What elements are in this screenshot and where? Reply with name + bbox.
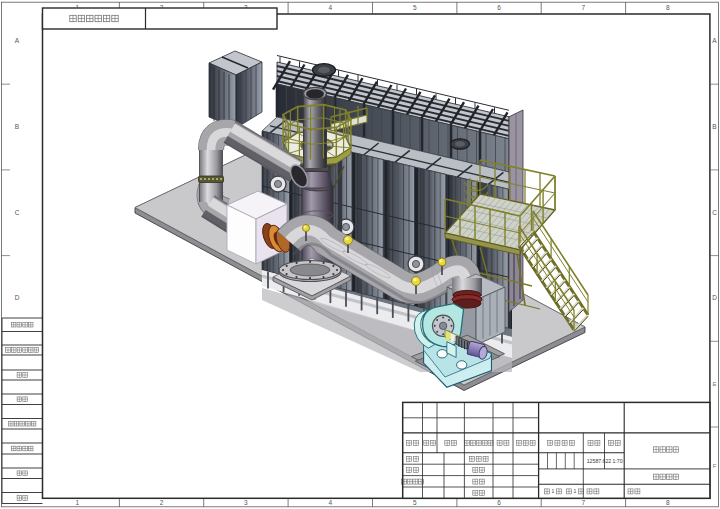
svg-text:D: D bbox=[15, 294, 20, 301]
svg-text:7: 7 bbox=[582, 499, 586, 506]
svg-text:5: 5 bbox=[413, 499, 417, 506]
svg-text:4: 4 bbox=[328, 499, 332, 506]
svg-text:12587.622: 12587.622 bbox=[587, 458, 612, 464]
svg-text:A: A bbox=[15, 37, 20, 44]
svg-text:B: B bbox=[712, 123, 716, 130]
svg-text:1: 1 bbox=[75, 499, 79, 506]
svg-text:1: 1 bbox=[552, 488, 555, 494]
svg-text:C: C bbox=[15, 209, 20, 216]
svg-text:8: 8 bbox=[666, 4, 670, 11]
svg-text:2: 2 bbox=[160, 499, 164, 506]
svg-text:C: C bbox=[712, 209, 717, 216]
svg-text:6: 6 bbox=[497, 499, 501, 506]
svg-text:7: 7 bbox=[582, 4, 586, 11]
svg-text:F: F bbox=[713, 463, 717, 469]
svg-text:B: B bbox=[15, 123, 19, 130]
svg-text:A: A bbox=[712, 37, 717, 44]
svg-text:4: 4 bbox=[328, 4, 332, 11]
svg-text:1:70: 1:70 bbox=[612, 458, 622, 464]
svg-text:D: D bbox=[712, 294, 717, 301]
svg-text:5: 5 bbox=[413, 4, 417, 11]
svg-text:8: 8 bbox=[666, 499, 670, 506]
svg-text:E: E bbox=[712, 381, 716, 387]
svg-text:1: 1 bbox=[574, 488, 577, 494]
svg-text:3: 3 bbox=[244, 499, 248, 506]
svg-text:6: 6 bbox=[497, 4, 501, 11]
